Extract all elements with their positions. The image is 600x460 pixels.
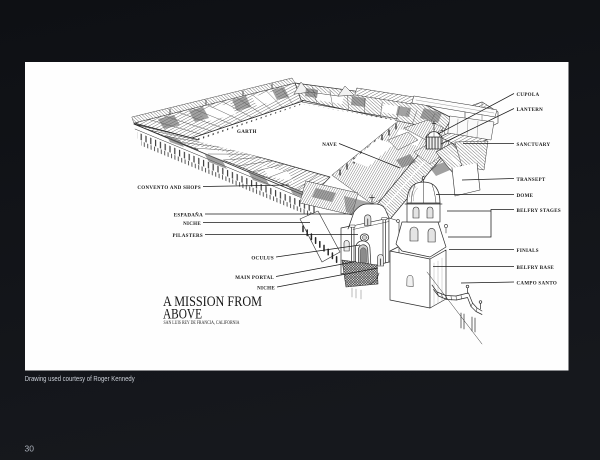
svg-text:CONVENTO AND SHOPS: CONVENTO AND SHOPS	[137, 186, 201, 191]
svg-text:DOME: DOME	[517, 194, 534, 199]
svg-text:NAVE: NAVE	[322, 143, 337, 148]
svg-text:MAIN PORTAL: MAIN PORTAL	[235, 276, 274, 281]
svg-text:FINIALS: FINIALS	[517, 249, 539, 254]
svg-text:LANTERN: LANTERN	[517, 108, 544, 113]
svg-text:BELFRY STAGES: BELFRY STAGES	[517, 209, 561, 214]
svg-text:NICHE: NICHE	[257, 287, 275, 292]
svg-text:SANCTUARY: SANCTUARY	[517, 143, 551, 148]
svg-text:PILASTERS: PILASTERS	[173, 234, 204, 239]
svg-text:30: 30	[25, 444, 35, 454]
svg-text:NICHE: NICHE	[183, 222, 201, 227]
svg-text:TRANSEPT: TRANSEPT	[517, 178, 546, 183]
svg-text:OCULUS: OCULUS	[251, 257, 274, 262]
svg-text:GARTH: GARTH	[237, 130, 257, 135]
svg-text:BELFRY BASE: BELFRY BASE	[517, 266, 555, 271]
svg-text:CUPOLA: CUPOLA	[517, 93, 540, 98]
svg-text:Drawing used courtesy of Roger: Drawing used courtesy of Roger Kennedy	[25, 374, 135, 383]
svg-text:SAN LUIS REY DE FRANCIA, CALIF: SAN LUIS REY DE FRANCIA, CALIFORNIA	[164, 321, 240, 326]
svg-text:ESPADAÑA: ESPADAÑA	[174, 213, 203, 219]
svg-text:CAMPO SANTO: CAMPO SANTO	[517, 282, 558, 287]
